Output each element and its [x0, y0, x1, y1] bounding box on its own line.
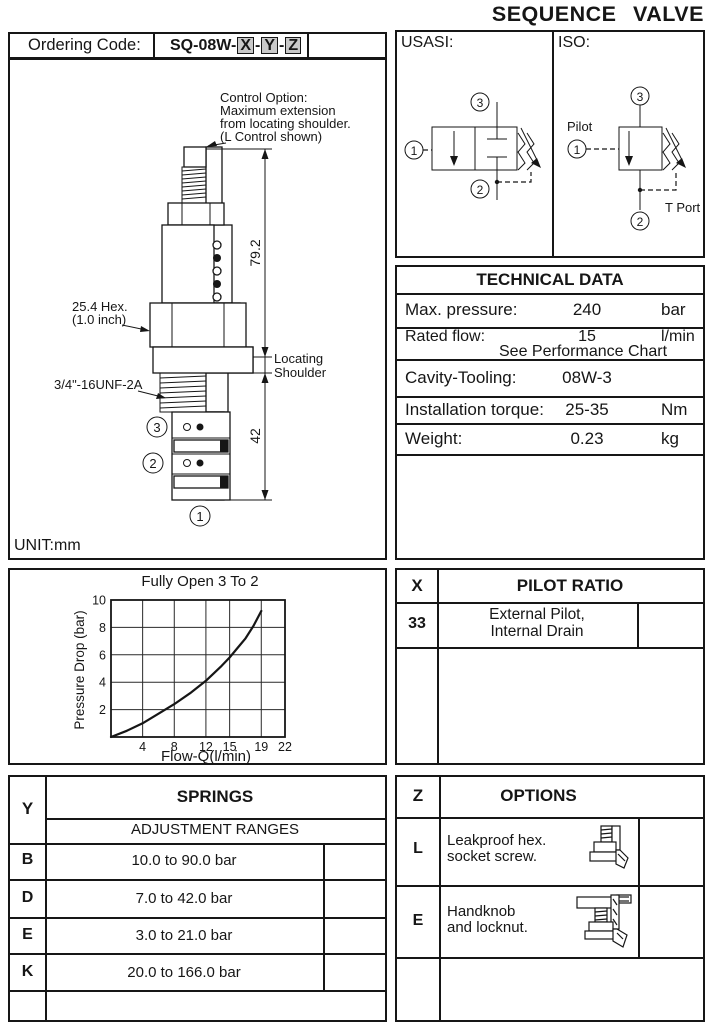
- valve-drawing-panel: 79.2 42 Control Option: Maximum extensio…: [8, 58, 387, 560]
- option-row-desc-2: and locknut.: [447, 919, 528, 936]
- ordering-code-y: Y: [261, 37, 278, 54]
- dim-79-2: 79.2: [247, 239, 263, 266]
- svg-text:4: 4: [139, 740, 146, 754]
- pilot-label: Pilot: [567, 119, 593, 134]
- symbols-panel: USASI: ISO: 1 3 2: [395, 30, 705, 258]
- options-title: OPTIONS: [439, 786, 638, 806]
- pilot-ratio-desc-1: External Pilot,: [437, 606, 637, 624]
- performance-chart-panel: Fully Open 3 To 2 Pressure Drop (bar) 48…: [8, 568, 387, 765]
- pilot-ratio-key-header: X: [397, 576, 437, 596]
- performance-chart-svg: Fully Open 3 To 2 Pressure Drop (bar) 48…: [10, 570, 385, 763]
- hydraulic-symbols-svg: 1 3 2: [397, 32, 703, 256]
- td-row-value: 240: [527, 300, 647, 320]
- valve-cross-section-drawing: 79.2 42 Control Option: Maximum extensio…: [10, 60, 385, 558]
- pilot-ratio-title: PILOT RATIO: [437, 576, 703, 596]
- chart-xlabel: Flow-Q(l/min): [161, 748, 251, 763]
- unit-note: UNIT:mm: [14, 537, 81, 555]
- td-row-unit: Nm: [661, 400, 687, 420]
- svg-text:1: 1: [411, 144, 418, 158]
- svg-text:2: 2: [637, 215, 644, 229]
- chart-tick-labels: 4812151922246810: [92, 594, 292, 755]
- spring-row-key: B: [10, 851, 45, 869]
- t-port-label: T Port: [665, 200, 701, 215]
- svg-text:3: 3: [153, 420, 160, 435]
- valve-locating-shoulder: [153, 347, 253, 373]
- td-row-label: Rated flow:: [405, 328, 485, 346]
- locating-shoulder-note: Locating Shoulder: [274, 351, 327, 380]
- options-key-header: Z: [397, 786, 439, 806]
- valve-spool: [172, 412, 230, 500]
- svg-text:19: 19: [254, 740, 268, 754]
- datasheet-page: SEQUENCE VALVE Ordering Code: SQ-08W-X-Y…: [0, 0, 709, 1028]
- svg-text:(1.0 inch): (1.0 inch): [72, 312, 126, 327]
- svg-text:3: 3: [637, 90, 644, 104]
- springs-panel: Y SPRINGS ADJUSTMENT RANGES B 10.0 to 90…: [8, 775, 387, 1022]
- technical-data-title: TECHNICAL DATA: [397, 270, 703, 290]
- springs-key-header: Y: [10, 799, 45, 819]
- svg-text:4: 4: [99, 676, 106, 690]
- option-row-key: L: [397, 840, 439, 858]
- valve-hex-body: [150, 303, 246, 347]
- ordering-code-sep2: -: [279, 37, 284, 54]
- page-title: SEQUENCE VALVE: [492, 2, 704, 27]
- svg-text:10: 10: [92, 594, 106, 608]
- td-row-label: Cavity-Tooling:: [405, 368, 517, 388]
- dim-42: 42: [247, 428, 263, 444]
- svg-text:8: 8: [99, 621, 106, 635]
- technical-data-panel: TECHNICAL DATA Max. pressure: 240 bar Ra…: [395, 265, 705, 560]
- svg-text:3/4"-16UNF-2A: 3/4"-16UNF-2A: [54, 377, 143, 392]
- option-row-desc-2: socket screw.: [447, 848, 537, 865]
- td-row-label: Max. pressure:: [405, 300, 517, 320]
- spring-row-range: 3.0 to 21.0 bar: [45, 927, 323, 944]
- handknob-locknut-icon: [573, 891, 635, 951]
- port-2-callout: 2: [143, 453, 163, 473]
- pilot-ratio-panel: X PILOT RATIO 33 External Pilot, Interna…: [395, 568, 705, 765]
- usasi-symbol: 1 3 2: [405, 93, 541, 200]
- spring-row-key: D: [10, 889, 45, 907]
- hex-socket-screw-icon: [580, 824, 634, 880]
- option-row-desc-1: Leakproof hex.: [447, 832, 546, 849]
- spring-row-range: 10.0 to 90.0 bar: [45, 852, 323, 869]
- hex-size-note: 25.4 Hex. (1.0 inch): [72, 299, 150, 332]
- td-row-unit: bar: [661, 300, 686, 320]
- svg-text:Locating: Locating: [274, 351, 323, 366]
- svg-text:1: 1: [196, 509, 203, 524]
- chart-plot-border: [111, 600, 285, 737]
- svg-text:6: 6: [99, 648, 106, 662]
- chart-title: Fully Open 3 To 2: [141, 573, 258, 590]
- chart-curve: [111, 611, 261, 737]
- pilot-ratio-row-key: 33: [397, 615, 437, 633]
- svg-text:2: 2: [99, 703, 106, 717]
- ordering-code-sep1: -: [255, 37, 260, 54]
- springs-subtitle: ADJUSTMENT RANGES: [45, 821, 385, 838]
- svg-text:(L Control shown): (L Control shown): [220, 129, 322, 144]
- spring-row-key: E: [10, 926, 45, 944]
- td-row-value: 0.23: [527, 429, 647, 449]
- thread-size-note: 3/4"-16UNF-2A: [54, 377, 166, 399]
- ordering-code-value: SQ-08W-X-Y-Z: [170, 37, 302, 55]
- ordering-code-prefix: SQ-08W-: [170, 37, 236, 54]
- td-row-label: Installation torque:: [405, 400, 544, 420]
- td-see-chart: See Performance Chart: [499, 343, 667, 361]
- port-3-callout: 3: [147, 417, 167, 437]
- port-1-callout: 1: [190, 506, 210, 526]
- svg-text:22: 22: [278, 740, 292, 754]
- svg-text:2: 2: [477, 183, 484, 197]
- control-option-note: Control Option: Maximum extension from l…: [206, 90, 351, 147]
- td-row-value: 25-35: [527, 400, 647, 420]
- ordering-code-label: Ordering Code:: [28, 36, 141, 55]
- ordering-code-bar: Ordering Code: SQ-08W-X-Y-Z: [8, 32, 387, 59]
- spring-row-range: 20.0 to 166.0 bar: [45, 964, 323, 981]
- option-row-key: E: [397, 912, 439, 930]
- valve-mounting-thread: [160, 373, 206, 412]
- td-row-value: 08W-3: [527, 368, 647, 388]
- chart-grid: [111, 600, 285, 737]
- ordering-code-z: Z: [285, 37, 301, 54]
- chart-ylabel: Pressure Drop (bar): [72, 610, 87, 729]
- pilot-ratio-desc-2: Internal Drain: [437, 623, 637, 641]
- ordering-code-x: X: [237, 37, 254, 54]
- option-row-desc-1: Handknob: [447, 903, 515, 920]
- svg-text:3: 3: [477, 96, 484, 110]
- td-row-unit: kg: [661, 429, 679, 449]
- iso-symbol: Pilot 1 3 T Port 2: [567, 87, 701, 230]
- td-row-label: Weight:: [405, 429, 462, 449]
- options-panel: Z OPTIONS L Leakproof hex. socket screw.…: [395, 775, 705, 1022]
- spring-row-range: 7.0 to 42.0 bar: [45, 890, 323, 907]
- valve-locknut: [168, 203, 224, 225]
- svg-text:2: 2: [149, 456, 156, 471]
- svg-text:1: 1: [574, 143, 581, 157]
- springs-title: SPRINGS: [45, 787, 385, 807]
- spring-row-key: K: [10, 963, 45, 981]
- valve-adjust-screw: [182, 147, 206, 203]
- svg-text:Shoulder: Shoulder: [274, 365, 327, 380]
